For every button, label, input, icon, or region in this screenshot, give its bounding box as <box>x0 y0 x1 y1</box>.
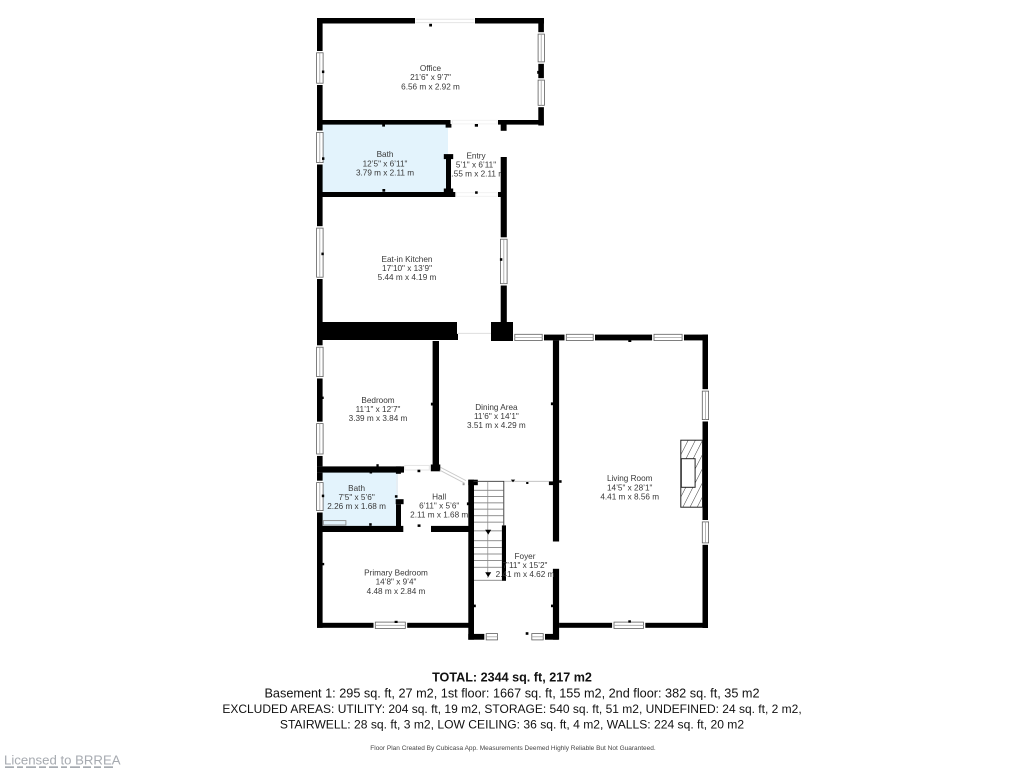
svg-text:Living Room: Living Room <box>607 474 653 483</box>
svg-text:6’11" x 5’6": 6’11" x 5’6" <box>419 502 459 511</box>
svg-text:12’5" x 6’11": 12’5" x 6’11" <box>363 159 408 168</box>
svg-text:7’5" x 5’6": 7’5" x 5’6" <box>338 493 374 502</box>
svg-text:Bedroom: Bedroom <box>361 396 394 405</box>
svg-text:3.51 m x 4.29 m: 3.51 m x 4.29 m <box>467 421 526 430</box>
svg-text:4.48 m x 2.84 m: 4.48 m x 2.84 m <box>367 587 426 596</box>
svg-text:STAIRWELL: 28 sq. ft, 3 m2, LO: STAIRWELL: 28 sq. ft, 3 m2, LOW CEILING:… <box>280 718 744 732</box>
svg-text:Hall: Hall <box>432 493 446 502</box>
svg-text:11’1" x 12’7": 11’1" x 12’7" <box>356 405 401 414</box>
svg-text:Floor Plan Created By Cubicasa: Floor Plan Created By Cubicasa App. Meas… <box>370 745 656 752</box>
svg-text:5’1" x 6’11": 5’1" x 6’11" <box>456 161 496 170</box>
svg-text:Entry: Entry <box>466 152 486 161</box>
svg-text:7’11" x 15’2": 7’11" x 15’2" <box>503 561 548 570</box>
svg-text:Dining Area: Dining Area <box>475 403 518 412</box>
svg-text:2.11 m x 1.68 m: 2.11 m x 1.68 m <box>410 511 468 520</box>
svg-text:3.79 m x 2.11 m: 3.79 m x 2.11 m <box>356 168 414 177</box>
svg-text:TOTAL: 2344 sq. ft, 217 m2: TOTAL: 2344 sq. ft, 217 m2 <box>432 671 592 685</box>
svg-text:4.41 m x 8.56 m: 4.41 m x 8.56 m <box>600 492 659 501</box>
svg-text:Office: Office <box>420 64 442 73</box>
svg-text:Primary Bedroom: Primary Bedroom <box>364 569 428 578</box>
svg-text:5.44 m x 4.19 m: 5.44 m x 4.19 m <box>378 273 437 282</box>
svg-text:Licensed to BRREA: Licensed to BRREA <box>4 752 121 767</box>
svg-text:2.41 m x 4.62 m: 2.41 m x 4.62 m <box>496 570 555 579</box>
svg-text:Basement 1: 295 sq. ft, 27 m2,: Basement 1: 295 sq. ft, 27 m2, 1st floor… <box>264 686 759 700</box>
svg-text:Bath: Bath <box>377 150 394 159</box>
svg-text:21’6" x 9’7": 21’6" x 9’7" <box>410 73 451 82</box>
svg-text:3.39 m x 3.84 m: 3.39 m x 3.84 m <box>349 414 408 423</box>
svg-text:14’8" x 9’4": 14’8" x 9’4" <box>376 578 417 587</box>
svg-text:11’6" x 14’1": 11’6" x 14’1" <box>474 412 519 421</box>
svg-text:6.56 m x 2.92 m: 6.56 m x 2.92 m <box>401 82 460 91</box>
svg-text:1.55 m x 2.11 m: 1.55 m x 2.11 m <box>447 170 505 179</box>
svg-text:EXCLUDED AREAS: UTILITY: 204 s: EXCLUDED AREAS: UTILITY: 204 sq. ft, 19 … <box>222 702 801 716</box>
svg-text:14’5" x 28’1": 14’5" x 28’1" <box>607 483 653 492</box>
svg-text:Foyer: Foyer <box>515 552 536 561</box>
svg-text:Eat-in Kitchen: Eat-in Kitchen <box>382 255 433 264</box>
svg-text:Bath: Bath <box>348 484 365 493</box>
svg-text:2.26 m x 1.68 m: 2.26 m x 1.68 m <box>327 502 386 511</box>
svg-text:17’10" x 13’9": 17’10" x 13’9" <box>382 264 432 273</box>
